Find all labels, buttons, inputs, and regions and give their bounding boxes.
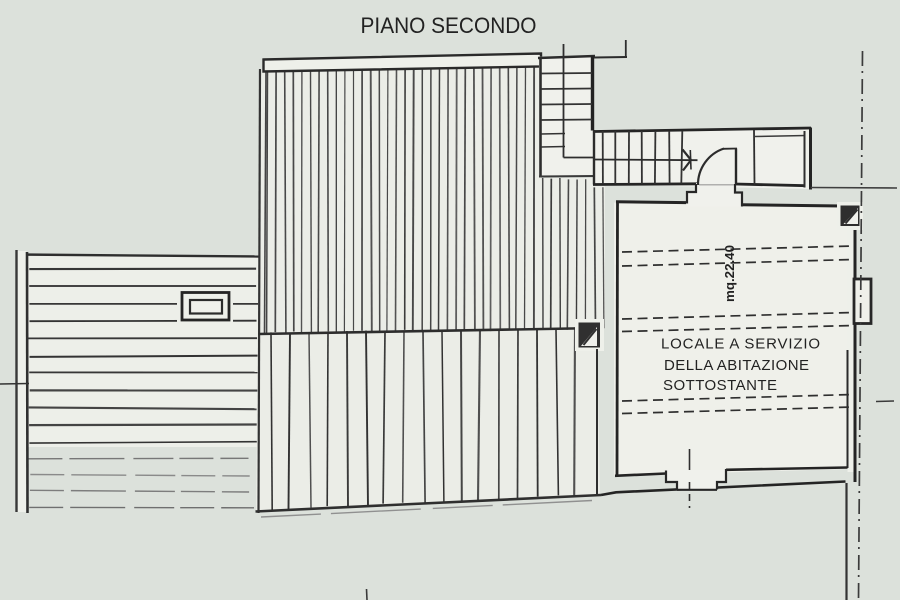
svg-text:PIANO SECONDO: PIANO SECONDO <box>361 13 537 38</box>
svg-text:mq.22.40: mq.22.40 <box>723 245 737 302</box>
svg-text:DELLA ABITAZIONE: DELLA ABITAZIONE <box>664 357 809 374</box>
svg-text:SOTTOSTANTE: SOTTOSTANTE <box>663 377 777 394</box>
svg-text:LOCALE A SERVIZIO: LOCALE A SERVIZIO <box>661 336 820 353</box>
